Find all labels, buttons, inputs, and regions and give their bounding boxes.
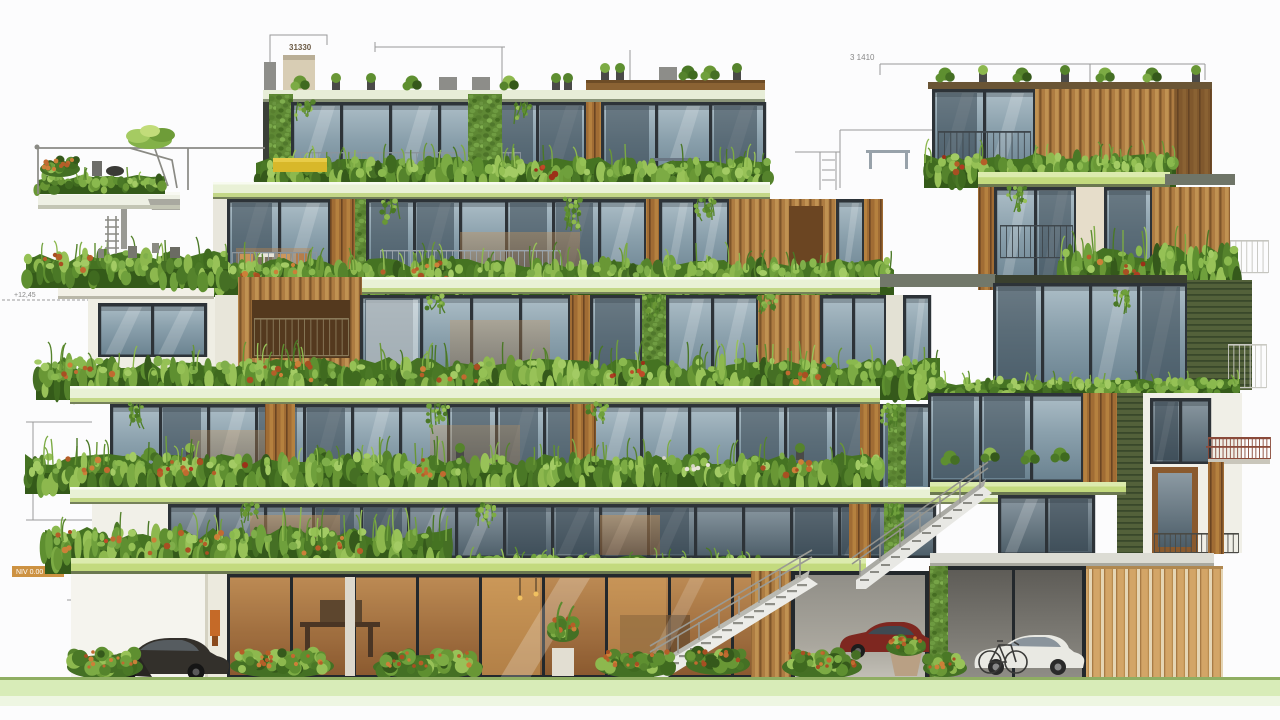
svg-text:NIV 0.00: NIV 0.00 (16, 569, 43, 576)
svg-text:+12,45: +12,45 (14, 292, 36, 299)
svg-text:31330: 31330 (289, 43, 312, 52)
svg-text:3 1410: 3 1410 (850, 53, 875, 62)
